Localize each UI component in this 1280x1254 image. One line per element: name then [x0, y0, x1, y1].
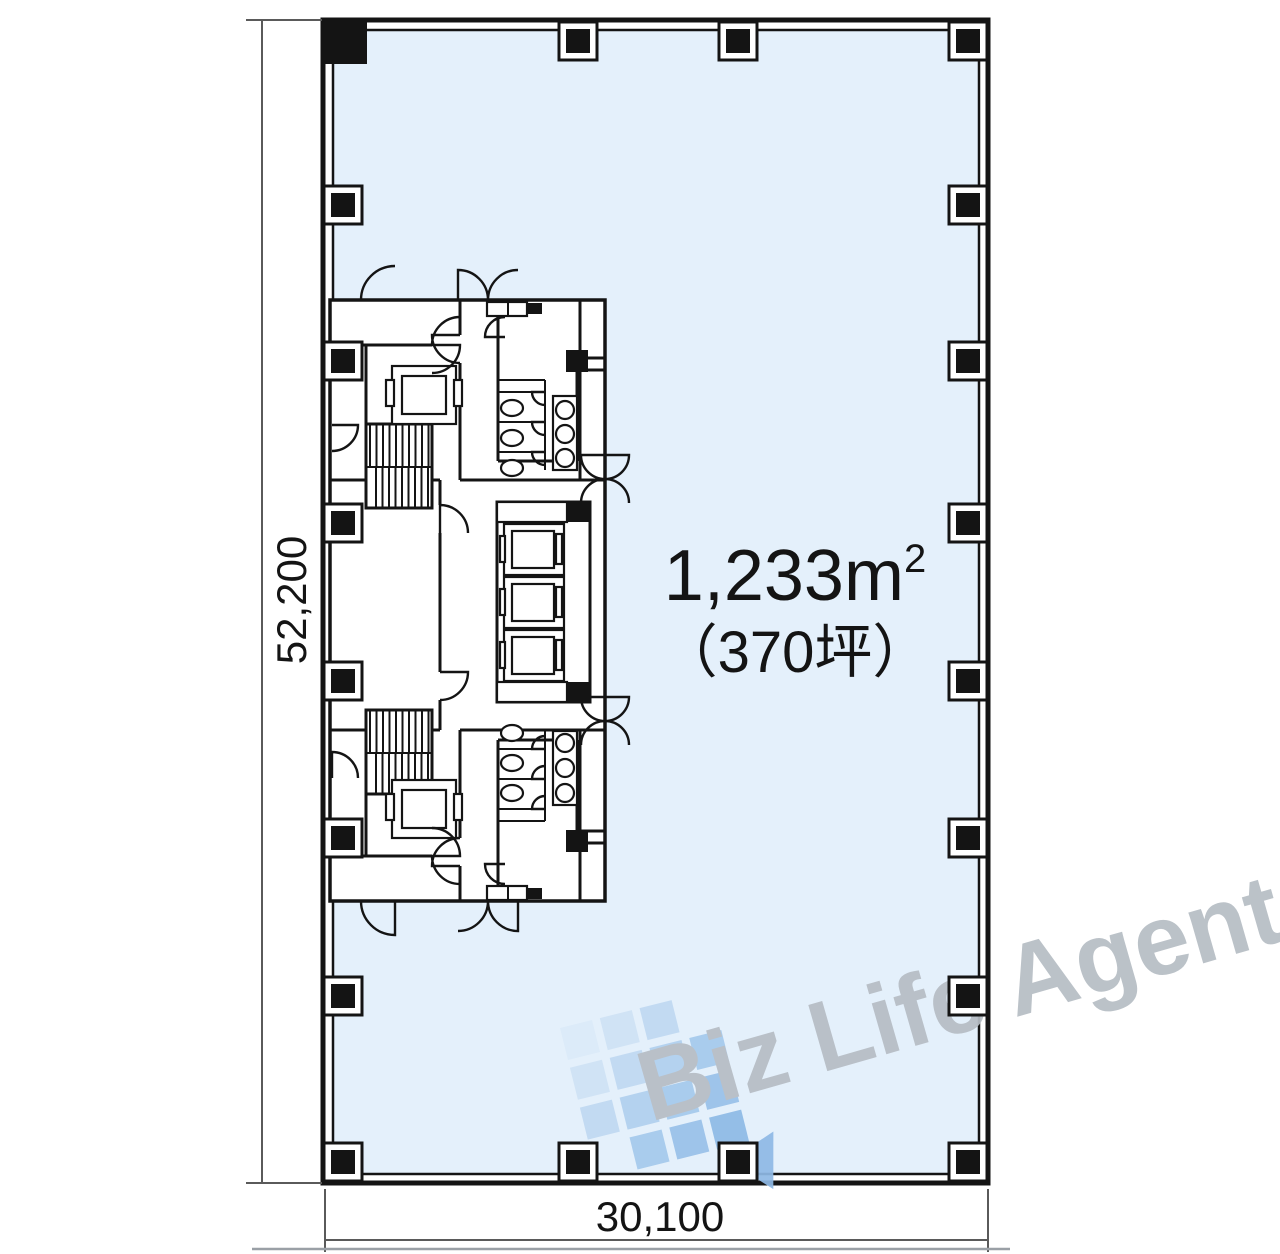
- column: [325, 22, 367, 64]
- floorplan-image: Biz Life Agent: [0, 0, 1280, 1254]
- column: [331, 193, 355, 217]
- column: [956, 349, 980, 373]
- column: [331, 984, 355, 1008]
- column: [956, 1150, 980, 1174]
- elevator-car: [500, 524, 564, 575]
- core-column: [566, 350, 588, 372]
- elevator-car: [500, 577, 564, 628]
- area-label-group: 1,233m2 （370坪）: [660, 536, 931, 685]
- shaft-box-bottom: [386, 780, 462, 838]
- column: [726, 1150, 750, 1174]
- column: [956, 826, 980, 850]
- height-dimension-label: 52,200: [268, 536, 315, 664]
- stairs-top: [366, 424, 432, 508]
- column: [956, 193, 980, 217]
- column: [956, 29, 980, 53]
- column: [956, 669, 980, 693]
- column: [331, 511, 355, 535]
- column: [566, 1150, 590, 1174]
- core-column: [566, 830, 588, 852]
- column: [956, 511, 980, 535]
- shaft-box-top: [386, 366, 462, 424]
- column: [331, 669, 355, 693]
- core-block: [330, 266, 629, 935]
- column: [331, 349, 355, 373]
- area-label-m2: 1,233m2: [664, 536, 926, 616]
- elevator-car: [500, 630, 564, 681]
- column: [331, 1150, 355, 1174]
- column: [566, 29, 590, 53]
- width-dimension-label: 30,100: [596, 1193, 724, 1240]
- column: [726, 29, 750, 53]
- area-label-tsubo: （370坪）: [660, 620, 931, 685]
- column: [956, 984, 980, 1008]
- column: [331, 826, 355, 850]
- elevator-bank: [497, 502, 590, 702]
